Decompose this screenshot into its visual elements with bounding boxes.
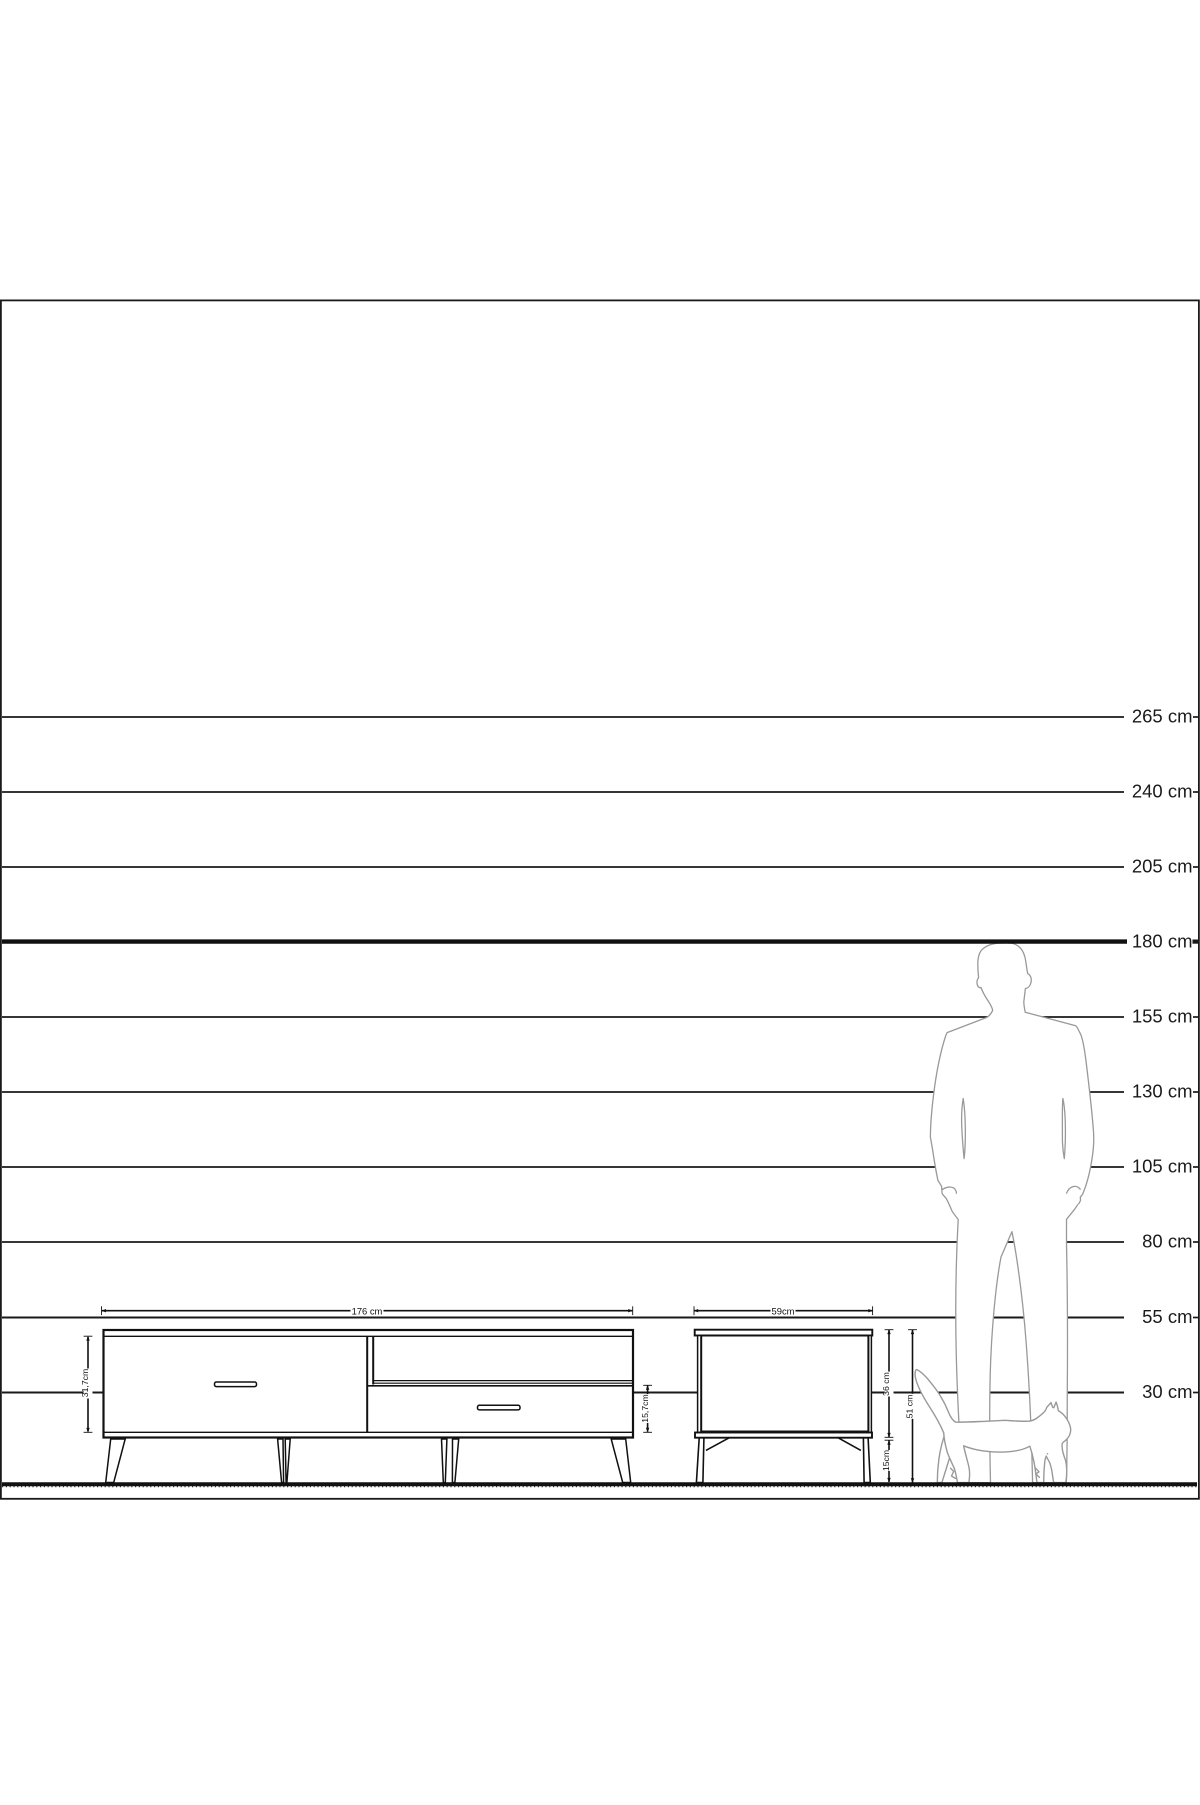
svg-text:176 cm: 176 cm [352,1305,383,1316]
svg-text:265 cm: 265 cm [1132,706,1193,727]
svg-text:31,7cm: 31,7cm [80,1369,90,1398]
svg-text:130 cm: 130 cm [1132,1081,1193,1102]
svg-text:205 cm: 205 cm [1132,856,1193,877]
svg-text:240 cm: 240 cm [1132,781,1193,802]
svg-text:36 cm: 36 cm [881,1372,891,1396]
svg-text:180 cm: 180 cm [1132,931,1193,952]
svg-text:30 cm: 30 cm [1142,1381,1192,1402]
svg-text:15cm: 15cm [881,1450,891,1471]
svg-text:105 cm: 105 cm [1132,1156,1193,1177]
svg-text:55 cm: 55 cm [1142,1306,1192,1327]
svg-text:51 cm: 51 cm [905,1395,915,1419]
svg-text:155 cm: 155 cm [1132,1006,1193,1027]
svg-text:15,7cm: 15,7cm [640,1394,650,1423]
svg-text:80 cm: 80 cm [1142,1231,1192,1252]
svg-text:59cm: 59cm [772,1305,795,1316]
